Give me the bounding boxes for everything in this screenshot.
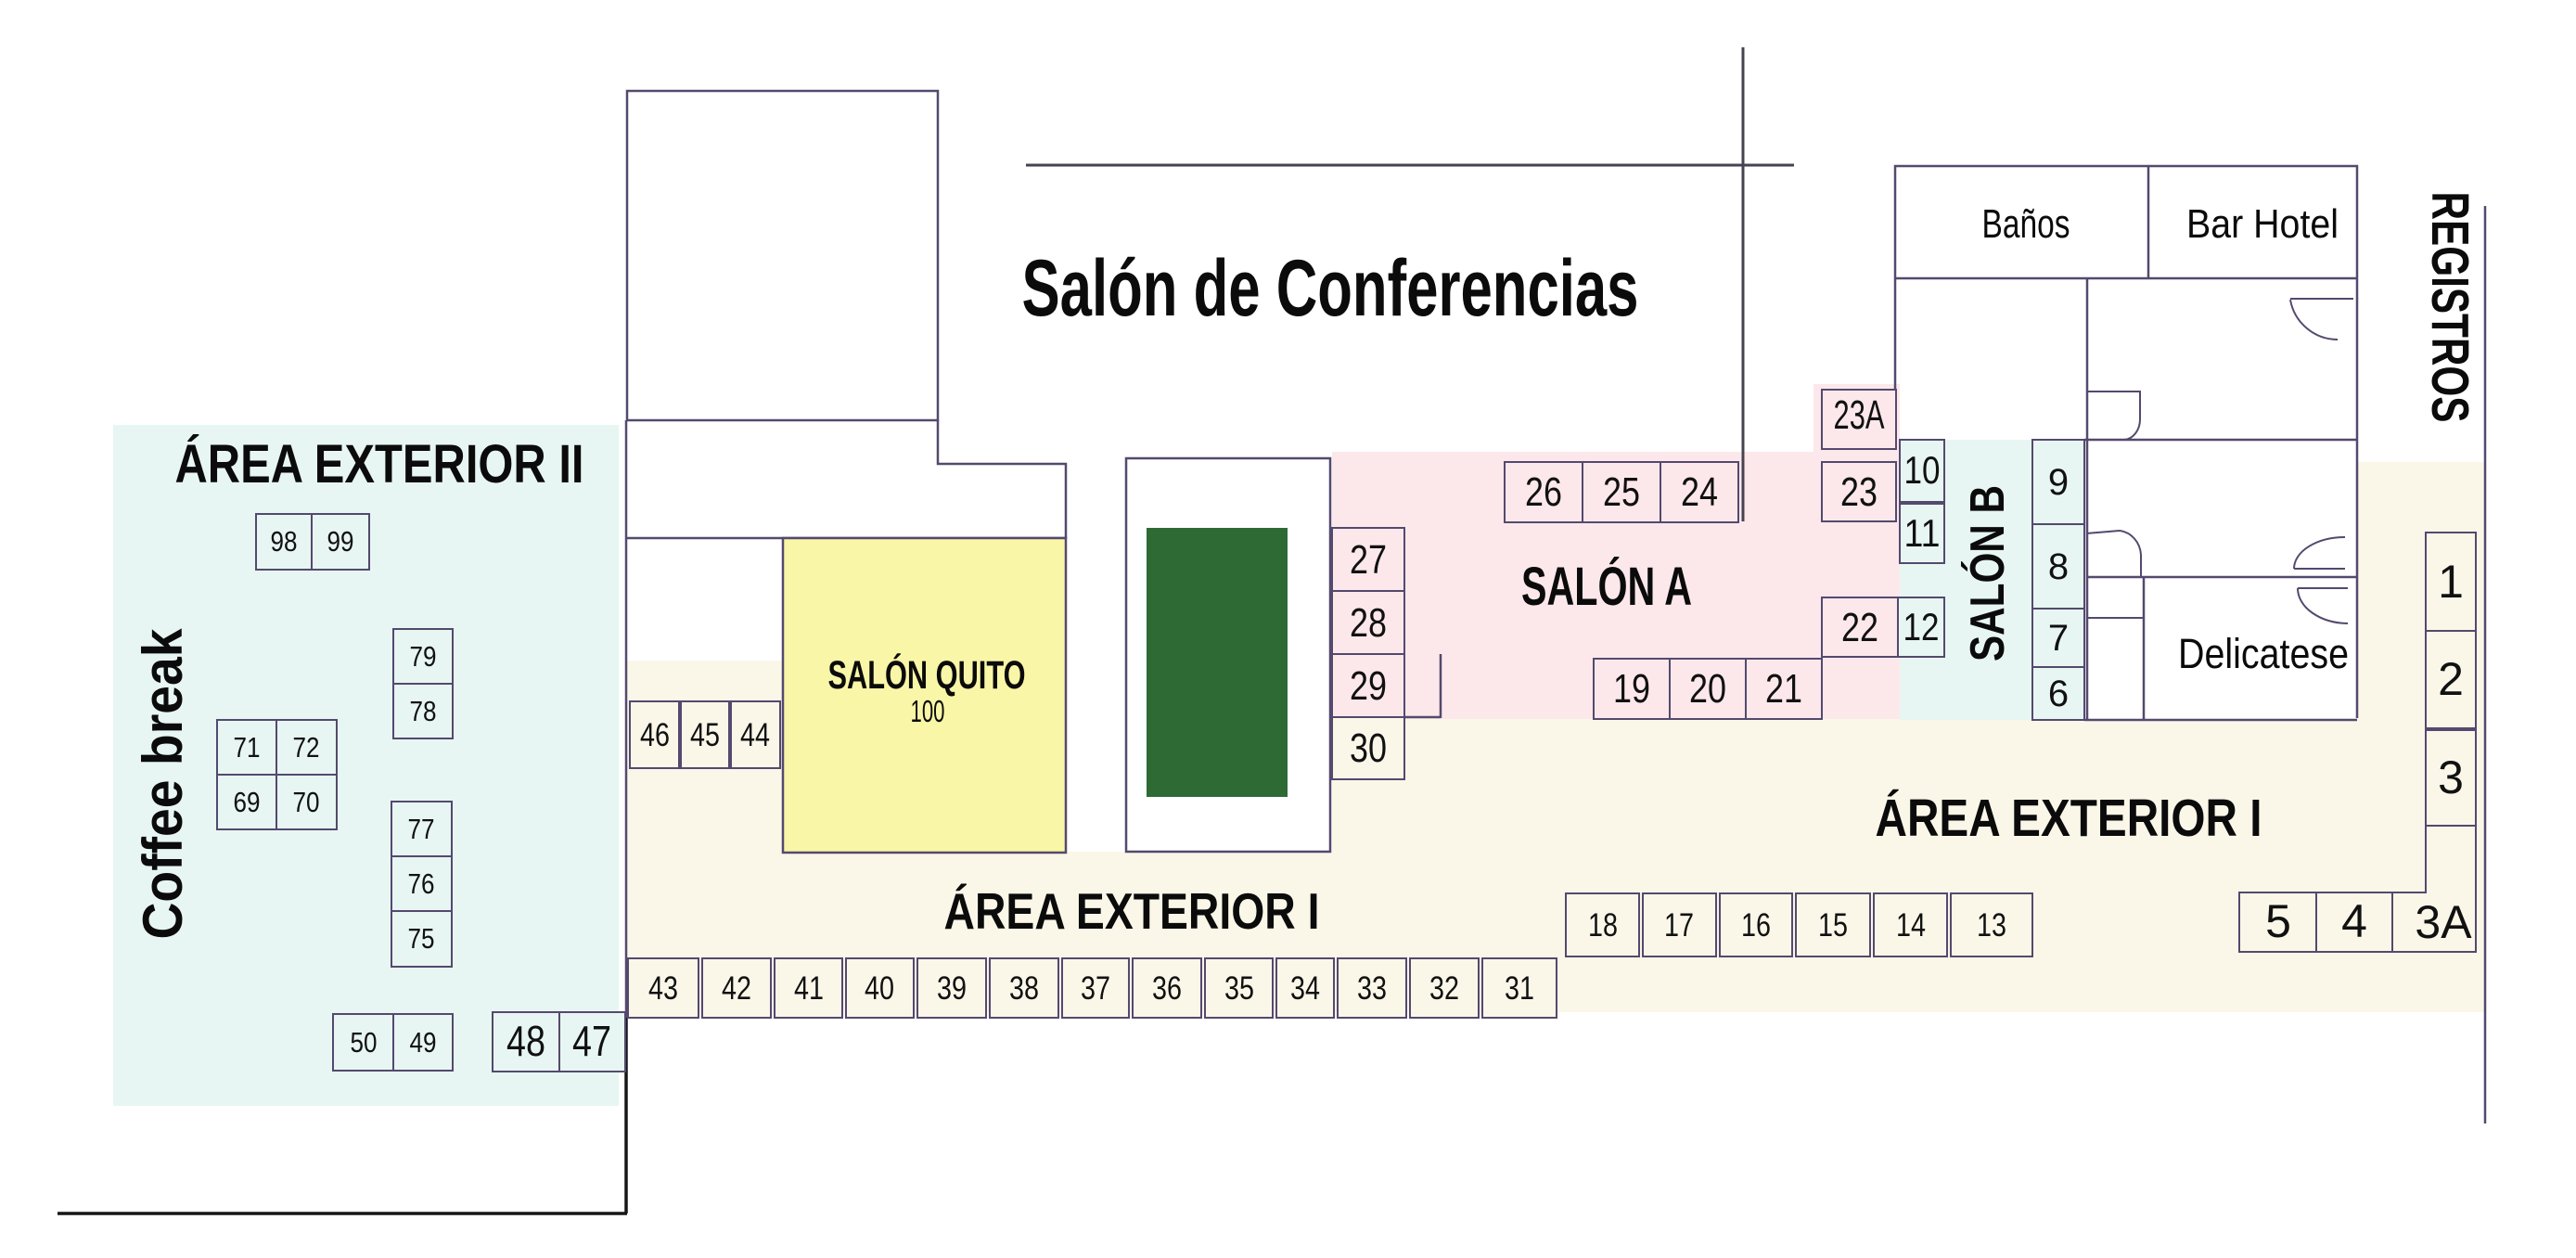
svg-text:31: 31	[1505, 970, 1534, 1007]
svg-text:36: 36	[1152, 970, 1182, 1007]
svg-text:ÁREA EXTERIOR I: ÁREA EXTERIOR I	[944, 882, 1320, 940]
svg-text:29: 29	[1350, 663, 1387, 709]
svg-text:76: 76	[408, 867, 435, 900]
svg-text:22: 22	[1841, 605, 1878, 650]
svg-text:39: 39	[937, 970, 967, 1007]
svg-text:Salón de Conferencias: Salón de Conferencias	[1022, 244, 1639, 333]
svg-text:46: 46	[640, 717, 670, 753]
svg-text:12: 12	[1903, 605, 1940, 648]
svg-text:79: 79	[410, 640, 437, 673]
svg-text:13: 13	[1977, 907, 2006, 943]
svg-text:49: 49	[410, 1026, 437, 1059]
svg-text:38: 38	[1009, 970, 1039, 1007]
svg-text:5: 5	[2265, 895, 2291, 947]
svg-text:69: 69	[234, 786, 261, 818]
svg-text:Baños: Baños	[1982, 201, 2070, 247]
svg-text:17: 17	[1664, 907, 1694, 943]
svg-text:19: 19	[1613, 666, 1650, 712]
svg-text:32: 32	[1429, 970, 1459, 1007]
svg-text:23: 23	[1840, 469, 1878, 515]
svg-text:14: 14	[1896, 907, 1926, 943]
svg-text:98: 98	[271, 525, 298, 558]
svg-text:15: 15	[1818, 907, 1848, 943]
svg-text:3A: 3A	[2415, 896, 2472, 948]
svg-text:35: 35	[1224, 970, 1254, 1007]
svg-text:77: 77	[408, 813, 435, 845]
svg-text:Delicatese: Delicatese	[2178, 630, 2349, 677]
svg-text:SALÓN QUITO: SALÓN QUITO	[828, 652, 1026, 698]
svg-text:71: 71	[234, 731, 261, 764]
svg-text:3: 3	[2438, 751, 2464, 803]
svg-text:40: 40	[865, 970, 894, 1007]
svg-text:72: 72	[293, 731, 320, 764]
svg-text:27: 27	[1350, 537, 1387, 583]
svg-text:6: 6	[2048, 674, 2069, 714]
svg-text:25: 25	[1603, 469, 1640, 515]
svg-text:18: 18	[1588, 907, 1618, 943]
svg-text:Bar Hotel: Bar Hotel	[2186, 201, 2339, 247]
svg-text:24: 24	[1681, 469, 1718, 515]
svg-text:4: 4	[2341, 895, 2367, 947]
svg-text:SALÓN B: SALÓN B	[1961, 485, 2015, 661]
svg-text:99: 99	[327, 525, 354, 558]
svg-text:45: 45	[690, 717, 720, 753]
svg-text:10: 10	[1904, 448, 1941, 492]
svg-text:16: 16	[1741, 907, 1771, 943]
svg-text:SALÓN A: SALÓN A	[1521, 557, 1692, 617]
svg-text:34: 34	[1290, 970, 1320, 1007]
svg-text:75: 75	[408, 922, 435, 955]
svg-text:47: 47	[572, 1017, 611, 1065]
svg-text:41: 41	[794, 970, 824, 1007]
svg-text:33: 33	[1357, 970, 1387, 1007]
svg-text:1: 1	[2438, 556, 2464, 608]
svg-text:Coffee break: Coffee break	[132, 628, 194, 940]
svg-text:48: 48	[506, 1017, 545, 1065]
svg-text:11: 11	[1904, 511, 1941, 555]
svg-text:8: 8	[2048, 546, 2069, 587]
svg-text:REGISTROS: REGISTROS	[2420, 192, 2480, 423]
svg-text:50: 50	[351, 1026, 378, 1059]
svg-text:21: 21	[1765, 666, 1802, 712]
svg-text:44: 44	[740, 717, 770, 753]
svg-text:70: 70	[293, 786, 320, 818]
svg-text:ÁREA EXTERIOR I: ÁREA EXTERIOR I	[1876, 789, 2262, 848]
svg-text:7: 7	[2048, 618, 2069, 659]
svg-text:43: 43	[648, 970, 678, 1007]
svg-text:78: 78	[410, 695, 437, 727]
svg-text:ÁREA EXTERIOR II: ÁREA EXTERIOR II	[175, 434, 584, 494]
svg-text:23A: 23A	[1834, 392, 1885, 438]
svg-text:26: 26	[1525, 469, 1562, 515]
svg-text:30: 30	[1350, 725, 1387, 771]
svg-text:100: 100	[911, 694, 945, 728]
svg-text:9: 9	[2048, 462, 2069, 503]
svg-text:28: 28	[1350, 600, 1387, 646]
svg-text:42: 42	[722, 970, 751, 1007]
svg-text:37: 37	[1081, 970, 1110, 1007]
svg-text:20: 20	[1689, 666, 1726, 712]
svg-text:2: 2	[2438, 653, 2464, 705]
